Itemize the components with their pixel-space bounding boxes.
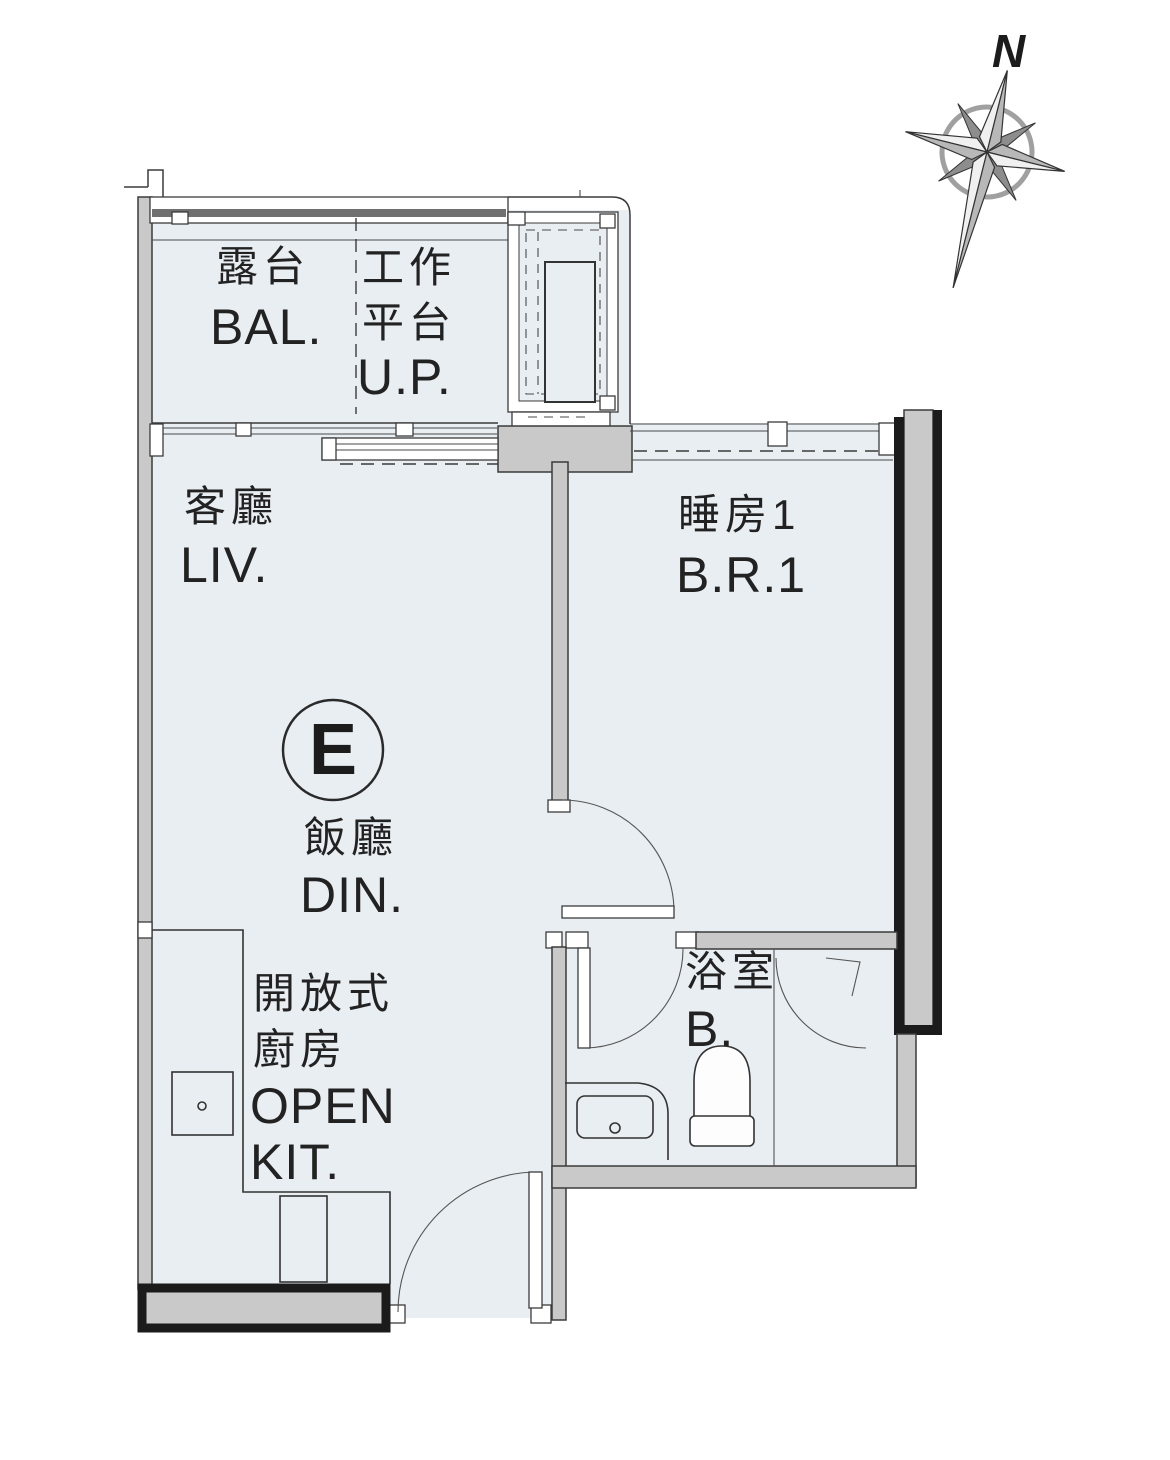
utility-platform-label-zh2: 平台	[362, 302, 456, 344]
bedroom1-label-zh: 睡房1	[678, 494, 800, 536]
sliding-door	[322, 438, 498, 460]
bathroom-label-en: B.	[685, 1004, 734, 1054]
balcony-top-wall-core	[152, 209, 506, 217]
bottom-exterior-wall	[142, 1288, 386, 1328]
utility-platform-label-en: U.P.	[357, 352, 452, 402]
bedroom-partition-wall	[552, 462, 568, 802]
bedroom1-label-en: B.R.1	[676, 550, 806, 600]
dining-label-zh: 飯廳	[304, 817, 398, 859]
bathroom-left-wall	[552, 947, 566, 1320]
floor-plan-drawing	[0, 0, 1170, 1460]
compass-north-label: N	[992, 28, 1025, 74]
dining-label-en: DIN.	[300, 870, 404, 920]
ac-unit	[545, 262, 595, 402]
living-label-en: LIV.	[180, 540, 268, 590]
balcony-label-zh: 露台	[216, 246, 310, 288]
left-exterior-wall	[138, 197, 152, 1289]
open-kitchen-label-en1: OPEN	[250, 1081, 396, 1131]
bathroom-front-wall	[696, 932, 897, 949]
toilet	[690, 1046, 754, 1146]
bathroom-label-zh: 浴室	[685, 951, 779, 993]
right-exterior-wall	[894, 410, 942, 1186]
open-kitchen-label-en2: KIT.	[250, 1137, 340, 1187]
top-left-wall-notch	[124, 170, 163, 197]
balcony-label-en: BAL.	[210, 302, 322, 352]
open-kitchen-label-zh1: 開放式	[253, 973, 394, 1015]
compass-rose-icon	[872, 50, 1085, 307]
utility-platform-label-zh1: 工作	[362, 247, 456, 289]
open-kitchen-label-zh2: 廚房	[253, 1029, 347, 1071]
living-label-zh: 客廳	[184, 486, 278, 528]
ac-platform	[498, 212, 632, 472]
bathroom-bottom-wall	[552, 1166, 916, 1188]
floor-plan: N 露台 BAL. 工作 平台 U.P. 客廳 LIV. 睡房1 B.R.1 E…	[0, 0, 1170, 1460]
unit-label: E	[303, 714, 363, 786]
